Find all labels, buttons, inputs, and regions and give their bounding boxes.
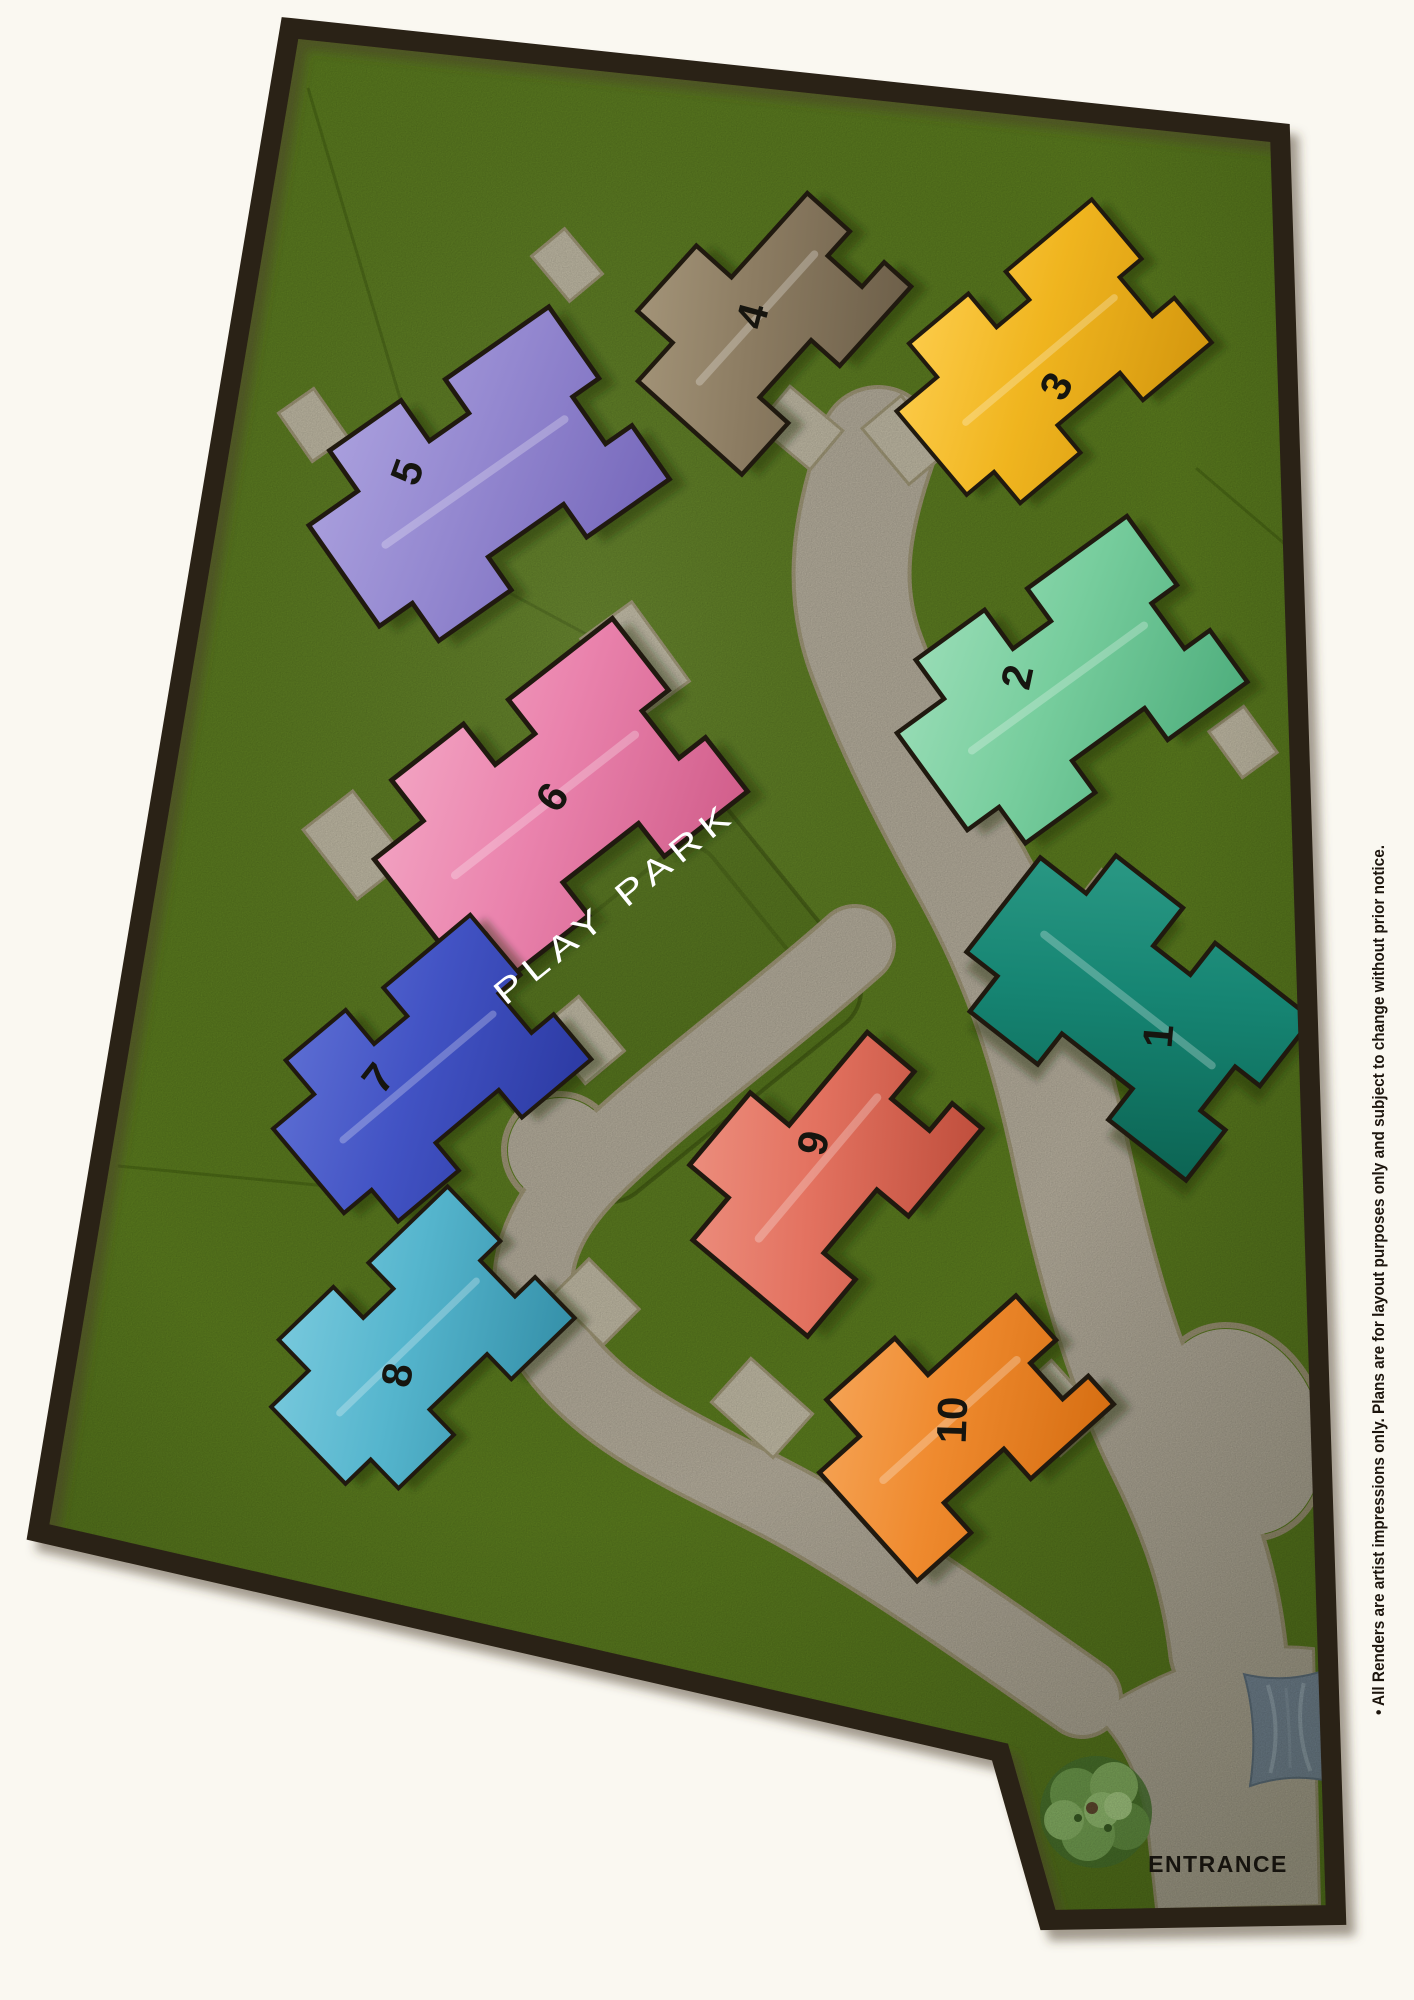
site-plan-canvas: 12345678910 PLAY PARK ENTRANCE • All Ren…: [0, 0, 1414, 2000]
site-plan-page: 12345678910 PLAY PARK ENTRANCE • All Ren…: [0, 0, 1414, 2000]
house-1-label: 1: [1134, 1022, 1183, 1049]
entrance-label: ENTRANCE: [1148, 1851, 1288, 1877]
disclaimer-text: • All Renders are artist impressions onl…: [1369, 845, 1388, 1715]
house-10-label: 10: [928, 1396, 977, 1444]
